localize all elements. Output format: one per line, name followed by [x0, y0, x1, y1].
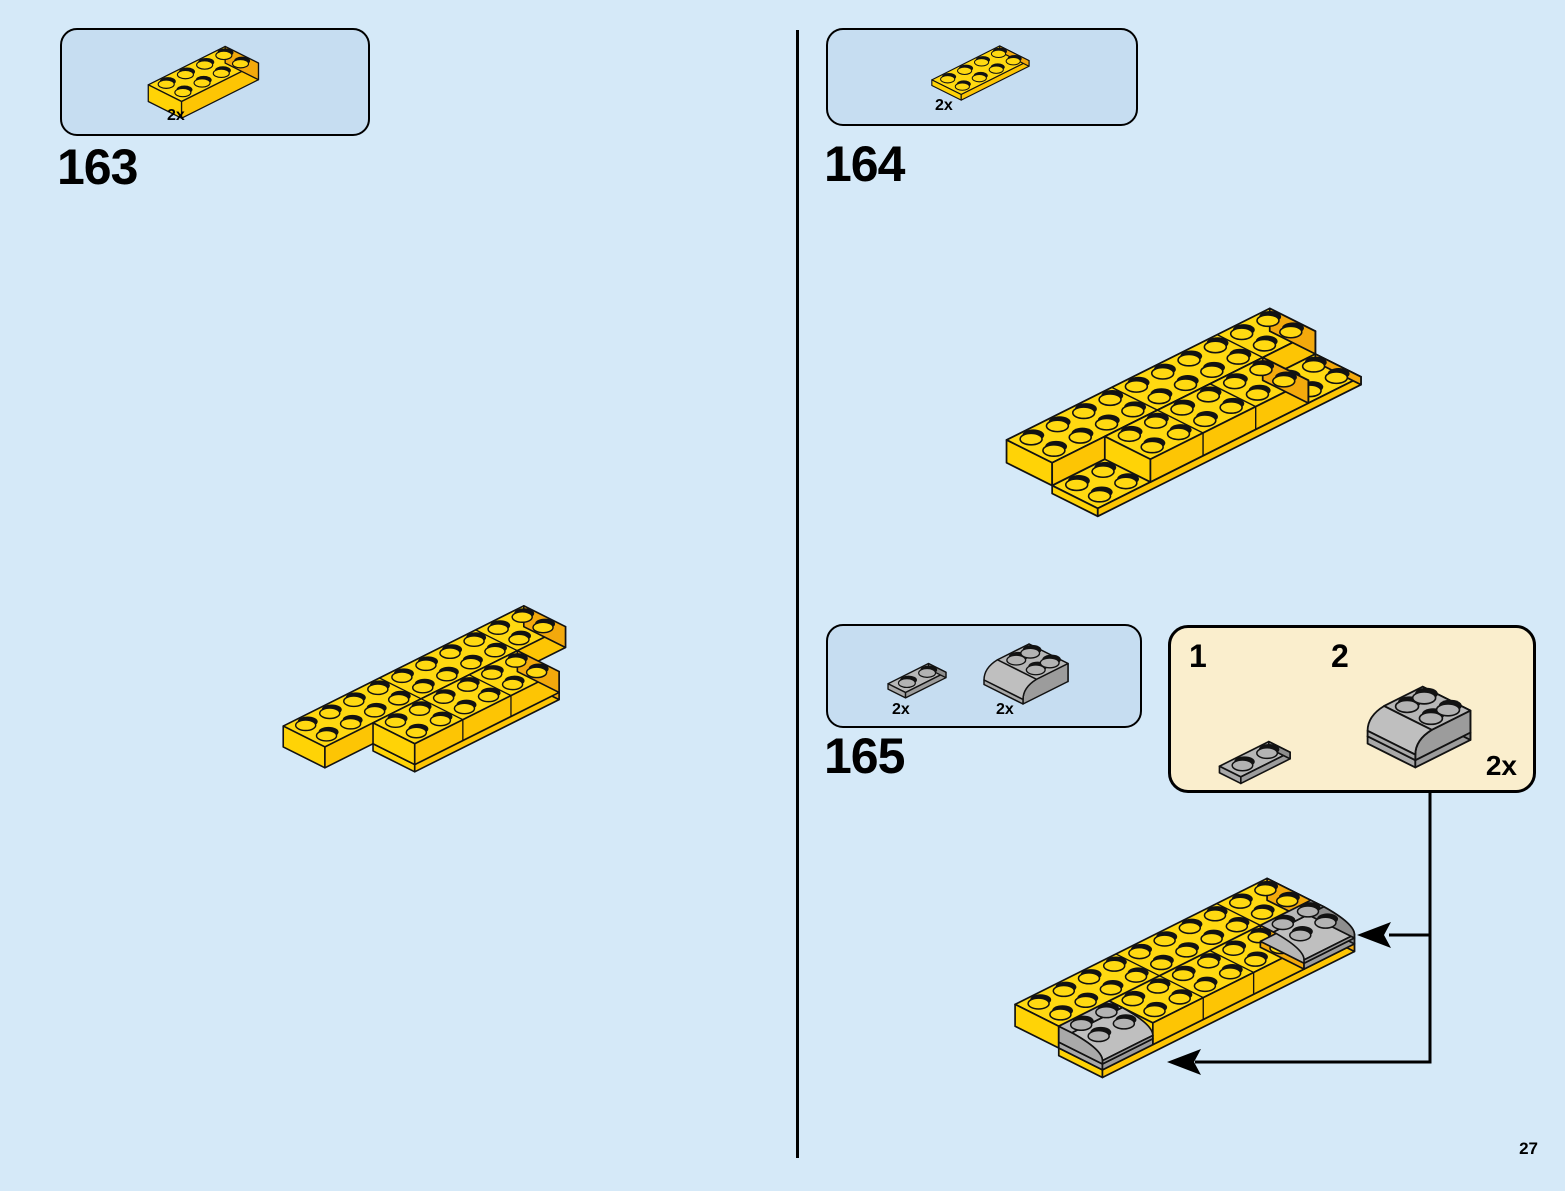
- part-count: 2x: [892, 702, 910, 718]
- slope-curved-2x2-gray-icon: [980, 632, 1072, 707]
- assembly-165-with-arrows: [995, 780, 1545, 1130]
- plate-1x2-gray-icon: [1217, 730, 1295, 786]
- step-number-163: 163: [57, 142, 137, 192]
- page-number: 27: [1500, 1140, 1538, 1157]
- slope-curved-2x2-gray-on-plate-icon: [1363, 672, 1475, 773]
- parts-box-163: 2x: [60, 28, 370, 136]
- brick-2x4-yellow-icon: [146, 40, 262, 122]
- callout-step-2-label: 2: [1331, 640, 1349, 672]
- assembly-163: [272, 596, 612, 776]
- part-count: 2x: [167, 108, 185, 124]
- column-divider: [796, 30, 799, 1158]
- assembly-164: [996, 295, 1368, 520]
- plate-2x4-yellow-icon: [930, 38, 1032, 103]
- part-count: 2x: [935, 98, 953, 114]
- step-number-165: 165: [824, 731, 904, 781]
- submodel-callout: 1 2 2x: [1168, 625, 1536, 793]
- callout-step-1-label: 1: [1189, 640, 1207, 672]
- step-number-164: 164: [824, 139, 904, 189]
- plate-1x2-gray-icon: [886, 654, 950, 700]
- callout-count: 2x: [1486, 752, 1517, 780]
- parts-box-164: 2x: [826, 28, 1138, 126]
- parts-box-165: 2x 2x: [826, 624, 1142, 728]
- instruction-page: 2x 163 2x 164 2x 2x 165 1 2 2x 27: [0, 0, 1565, 1191]
- part-count: 2x: [996, 702, 1014, 718]
